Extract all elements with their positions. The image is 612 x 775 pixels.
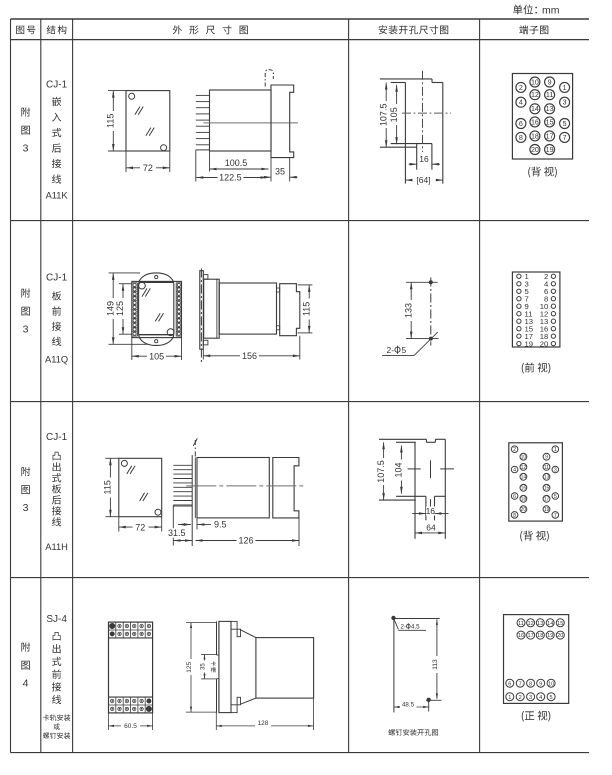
svg-text:149: 149 xyxy=(105,301,115,316)
svg-text:125: 125 xyxy=(115,301,125,316)
svg-text:14: 14 xyxy=(547,621,553,627)
svg-text:3: 3 xyxy=(554,467,557,473)
svg-text:SJ-4: SJ-4 xyxy=(46,614,67,625)
svg-text:133: 133 xyxy=(403,303,413,318)
svg-text:6: 6 xyxy=(508,681,511,687)
svg-text:14: 14 xyxy=(531,105,539,113)
svg-text:19: 19 xyxy=(544,507,550,513)
svg-text:16: 16 xyxy=(521,486,527,492)
svg-text:60.5: 60.5 xyxy=(124,723,137,730)
svg-text:9: 9 xyxy=(548,78,552,86)
svg-text:CJ-1: CJ-1 xyxy=(46,432,68,443)
svg-text:20: 20 xyxy=(521,507,527,513)
svg-text:4: 4 xyxy=(23,678,29,690)
svg-text:115: 115 xyxy=(106,114,116,128)
svg-text:105: 105 xyxy=(389,107,399,122)
svg-text:9: 9 xyxy=(545,455,548,461)
svg-text:3: 3 xyxy=(529,695,532,701)
svg-text:13: 13 xyxy=(544,475,550,481)
svg-text:4.5: 4.5 xyxy=(411,623,420,630)
svg-text:4: 4 xyxy=(513,467,516,473)
svg-text:107.5: 107.5 xyxy=(378,104,388,127)
svg-text:7: 7 xyxy=(563,134,567,142)
svg-text:35: 35 xyxy=(275,167,285,177)
svg-text:19: 19 xyxy=(546,146,554,154)
svg-text:10: 10 xyxy=(548,681,554,687)
svg-text:18: 18 xyxy=(521,497,527,503)
svg-text:11: 11 xyxy=(546,91,553,99)
svg-text:7: 7 xyxy=(519,681,522,687)
svg-text:15: 15 xyxy=(546,118,554,126)
svg-text:20: 20 xyxy=(557,633,563,639)
svg-text:115: 115 xyxy=(301,302,311,316)
svg-text:17: 17 xyxy=(544,497,550,503)
svg-text:3: 3 xyxy=(23,324,29,336)
svg-text:19: 19 xyxy=(525,339,534,348)
svg-text:128: 128 xyxy=(258,720,269,727)
svg-text:156: 156 xyxy=(242,351,257,361)
svg-text:115: 115 xyxy=(103,480,113,494)
svg-text:6: 6 xyxy=(513,494,516,500)
svg-text:mm: mm xyxy=(542,5,560,17)
svg-text:5: 5 xyxy=(554,494,557,500)
svg-text:A11H: A11H xyxy=(45,542,68,552)
svg-text:2: 2 xyxy=(513,447,516,453)
svg-text:8: 8 xyxy=(529,681,532,687)
svg-text:3: 3 xyxy=(23,143,29,155)
svg-text:4: 4 xyxy=(539,695,542,701)
svg-text:CJ-1: CJ-1 xyxy=(46,273,68,284)
svg-text:12: 12 xyxy=(531,91,539,99)
svg-text:100.5: 100.5 xyxy=(225,158,248,168)
svg-text:48.5: 48.5 xyxy=(402,702,415,709)
svg-text:11: 11 xyxy=(544,465,549,471)
svg-text:5: 5 xyxy=(550,695,553,701)
svg-text:A11K: A11K xyxy=(46,190,69,200)
svg-text:105: 105 xyxy=(149,351,164,361)
svg-text:14: 14 xyxy=(521,475,527,481)
svg-text:16: 16 xyxy=(426,506,436,516)
svg-text:20: 20 xyxy=(540,339,549,348)
svg-text:72: 72 xyxy=(135,522,145,532)
svg-text:8: 8 xyxy=(519,134,523,142)
svg-text:2: 2 xyxy=(519,695,522,701)
svg-text:113: 113 xyxy=(432,659,439,670)
svg-text:12: 12 xyxy=(521,465,527,471)
svg-text:3: 3 xyxy=(563,99,567,107)
svg-text:4: 4 xyxy=(519,99,523,107)
svg-text:64: 64 xyxy=(426,522,436,532)
svg-text:2: 2 xyxy=(519,84,523,92)
svg-text:13: 13 xyxy=(537,621,543,627)
svg-text:15: 15 xyxy=(544,486,550,492)
svg-text:104: 104 xyxy=(394,462,404,477)
svg-text:1: 1 xyxy=(554,447,557,453)
svg-text:[64]: [64] xyxy=(416,175,430,185)
svg-text:7: 7 xyxy=(554,513,557,519)
svg-text:31.5: 31.5 xyxy=(168,528,186,538)
svg-text:17: 17 xyxy=(527,633,533,639)
svg-text:16: 16 xyxy=(518,633,524,639)
svg-text:107.5: 107.5 xyxy=(376,460,386,483)
svg-text:19: 19 xyxy=(547,633,553,639)
svg-text:3: 3 xyxy=(23,502,29,514)
svg-text:18: 18 xyxy=(537,633,543,639)
svg-text:9.5: 9.5 xyxy=(214,520,227,530)
svg-text:10: 10 xyxy=(531,78,539,86)
svg-text:10: 10 xyxy=(521,455,527,461)
svg-text:CJ-1: CJ-1 xyxy=(46,79,68,90)
svg-text:16: 16 xyxy=(419,154,429,164)
svg-text:17: 17 xyxy=(546,132,554,140)
svg-text:2-: 2- xyxy=(401,623,407,630)
svg-text:6: 6 xyxy=(519,120,523,128)
svg-text:72: 72 xyxy=(143,163,153,173)
svg-text:5: 5 xyxy=(563,120,567,128)
svg-text:15: 15 xyxy=(557,621,563,627)
svg-text:125: 125 xyxy=(186,661,193,672)
svg-text:126: 126 xyxy=(238,536,253,546)
svg-text:2-: 2- xyxy=(387,345,395,355)
svg-text:A11Q: A11Q xyxy=(45,354,68,364)
svg-text:35: 35 xyxy=(201,663,207,670)
svg-text:20: 20 xyxy=(531,146,539,154)
svg-text:12: 12 xyxy=(527,621,533,627)
svg-text:5: 5 xyxy=(402,345,407,355)
svg-text:1: 1 xyxy=(508,695,511,701)
svg-text:13: 13 xyxy=(546,105,554,113)
svg-text:16: 16 xyxy=(531,118,539,126)
svg-text:9: 9 xyxy=(539,681,542,687)
svg-text:122.5: 122.5 xyxy=(219,173,242,183)
svg-text:11: 11 xyxy=(518,621,524,627)
svg-text:18: 18 xyxy=(531,132,539,140)
svg-text:1: 1 xyxy=(563,84,567,92)
svg-text:8: 8 xyxy=(513,513,516,519)
